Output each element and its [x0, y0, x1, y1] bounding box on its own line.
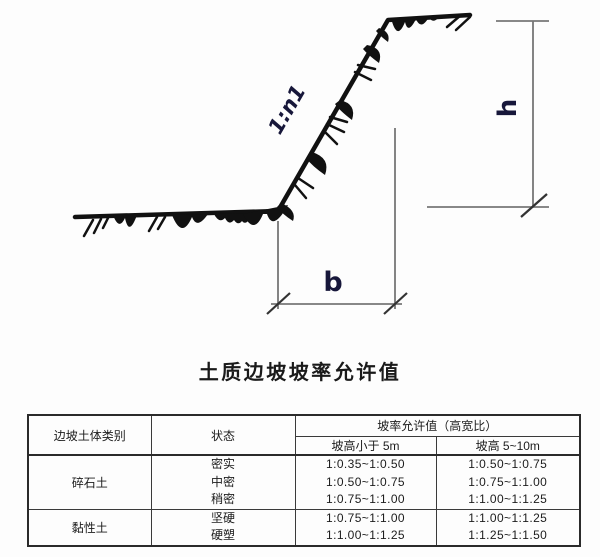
ratio-value: 1:0.75~1:1.00: [296, 510, 436, 528]
table-row-cohesive-soil: 黏性土 坚硬 硬塑 1:0.75~1:1.00 1:1.00~1:1.25 1:…: [28, 509, 580, 546]
ratio-value: 1:0.35~1:0.50: [296, 456, 436, 474]
cell-values-cohesive-lt5: 1:0.75~1:1.00 1:1.00~1:1.25: [295, 509, 436, 546]
ratio-value: 1:1.00~1:1.25: [437, 491, 580, 509]
ground-hatch-upper: [391, 16, 440, 31]
ratio-value: 1:0.75~1:1.00: [437, 474, 580, 492]
header-state: 状态: [151, 415, 295, 455]
slope-ratio-label: 1:n1: [263, 81, 310, 139]
ratio-value: 1:1.00~1:1.25: [437, 510, 580, 528]
cell-values-cohesive-5to10: 1:1.00~1:1.25 1:1.25~1:1.50: [436, 509, 580, 546]
ratio-value: 1:0.50~1:0.75: [437, 456, 580, 474]
cell-values-gravel-lt5: 1:0.35~1:0.50 1:0.50~1:0.75 1:0.75~1:1.0…: [295, 455, 436, 509]
cell-category-gravel: 碎石土: [28, 455, 151, 509]
state-line: 稍密: [152, 491, 295, 509]
slope-ratio-table: 边坡土体类别 状态 坡率允许值（高宽比） 坡高小于 5m 坡高 5~10m 碎石…: [27, 414, 581, 547]
header-category: 边坡土体类别: [28, 415, 151, 455]
state-line: 硬塑: [152, 527, 295, 545]
height-label: h: [493, 99, 523, 118]
base-label: b: [323, 267, 342, 298]
cell-states-gravel: 密实 中密 稍密: [151, 455, 295, 509]
state-line: 中密: [152, 474, 295, 492]
slope-diagram-figure: 1:n1 h b: [0, 0, 600, 340]
header-ratio-group: 坡率允许值（高宽比）: [295, 415, 580, 436]
ratio-value: 1:0.50~1:0.75: [296, 474, 436, 492]
ground-hatch-lower-ticks: [84, 217, 165, 236]
ratio-value: 1:1.00~1:1.25: [296, 527, 436, 545]
header-col-5to10m: 坡高 5~10m: [436, 436, 580, 455]
ratio-value: 1:0.75~1:1.00: [296, 491, 436, 509]
cell-category-cohesive: 黏性土: [28, 509, 151, 546]
slope-hatch-ticks: [295, 65, 375, 198]
height-dimension: [427, 21, 549, 207]
table-row-gravel-soil: 碎石土 密实 中密 稍密 1:0.35~1:0.50 1:0.50~1:0.75…: [28, 455, 580, 509]
slope-hatch: [277, 28, 389, 221]
state-line: 密实: [152, 456, 295, 474]
header-col-lt5m: 坡高小于 5m: [295, 436, 436, 455]
document-page: 1:n1 h b 土质边坡坡率允许值 边坡土体类别 状态 坡率允许值（高宽比） …: [0, 0, 600, 557]
cell-values-gravel-5to10: 1:0.50~1:0.75 1:0.75~1:1.00 1:1.00~1:1.2…: [436, 455, 580, 509]
height-dimension-tick: [521, 194, 547, 217]
state-line: 坚硬: [152, 510, 295, 528]
ratio-value: 1:1.25~1:1.50: [437, 527, 580, 545]
cell-states-cohesive: 坚硬 硬塑: [151, 509, 295, 546]
table-title: 土质边坡坡率允许值: [0, 356, 600, 385]
